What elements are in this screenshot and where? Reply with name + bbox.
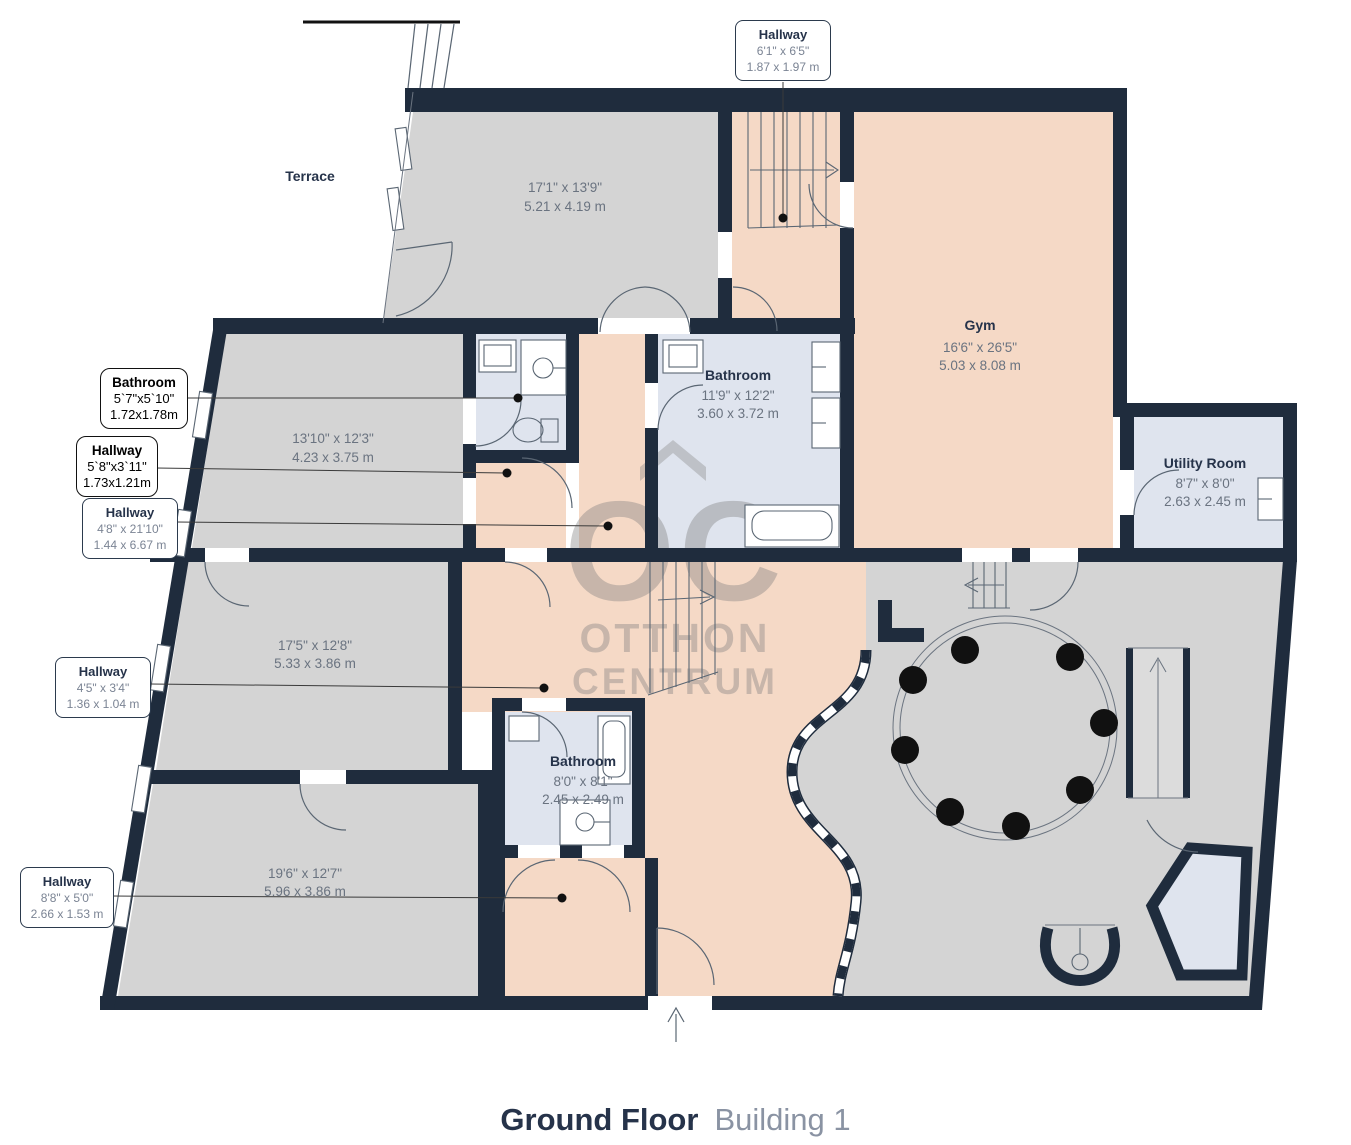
floor-plan-svg: OC OTTHON CENTRUM xyxy=(0,0,1351,1145)
bottom-bathroom-label: Bathroom xyxy=(550,753,616,769)
building-title: Building 1 xyxy=(714,1102,850,1138)
callout-hallway-d: Hallway 8'8" x 5'0" 2.66 x 1.53 m xyxy=(20,867,114,928)
callout-hallway-b: Hallway 4'8" x 21'10" 1.44 x 6.67 m xyxy=(82,498,178,559)
callout-m: 1.72x1.78m xyxy=(107,407,181,423)
gym-ft: 16'6" x 26'5" xyxy=(943,340,1017,355)
utility-label: Utility Room xyxy=(1164,455,1246,471)
callout-ft: 8'8" x 5'0" xyxy=(27,890,107,906)
callout-ft: 5`7"x5`10" xyxy=(107,391,181,407)
mid-bathroom-m: 3.60 x 3.72 m xyxy=(697,406,779,421)
callout-ft: 4'8" x 21'10" xyxy=(89,521,171,537)
callout-title: Hallway xyxy=(27,873,107,890)
room-17-5-m: 5.33 x 3.86 m xyxy=(274,656,356,671)
terrace-floor xyxy=(383,112,718,323)
floor-title: Ground Floor xyxy=(500,1102,698,1138)
room-17-5-ft: 17'5" x 12'8" xyxy=(278,638,352,653)
outdoor-stairs xyxy=(303,22,460,88)
mid-bathroom-label: Bathroom xyxy=(705,367,771,383)
callout-m: 1.73x1.21m xyxy=(83,475,151,491)
room-13-10-ft: 13'10" x 12'3" xyxy=(292,431,374,446)
watermark-logo: OC OTTHON CENTRUM xyxy=(565,440,786,702)
callout-title: Hallway xyxy=(742,26,824,43)
bottom-bathroom-ft: 8'0" x 8'1" xyxy=(553,774,612,789)
room-17-1-ft: 17'1" x 13'9" xyxy=(528,180,602,195)
gym-m: 5.03 x 8.08 m xyxy=(939,358,1021,373)
gym-label: Gym xyxy=(964,317,995,333)
right-staircase xyxy=(1126,648,1190,798)
utility-m: 2.63 x 2.45 m xyxy=(1164,494,1246,509)
callout-ft: 6'1" x 6'5" xyxy=(742,43,824,59)
utility-ft: 8'7" x 8'0" xyxy=(1175,476,1234,491)
callout-bathroom-left: Bathroom 5`7"x5`10" 1.72x1.78m xyxy=(100,368,188,429)
callout-ft: 5`8"x3`11" xyxy=(83,459,151,475)
mini-hall-floor xyxy=(474,463,566,553)
callout-hallway-top: Hallway 6'1" x 6'5" 1.87 x 1.97 m xyxy=(735,20,831,81)
bottom-bathroom-m: 2.45 x 2.49 m xyxy=(542,792,624,807)
callout-hallway-c: Hallway 4'5" x 3'4" 1.36 x 1.04 m xyxy=(55,657,151,718)
room-13-10-m: 4.23 x 3.75 m xyxy=(292,450,374,465)
callout-m: 1.87 x 1.97 m xyxy=(742,59,824,75)
callout-hallway-a: Hallway 5`8"x3`11" 1.73x1.21m xyxy=(76,436,158,497)
room-19-6-ft: 19'6" x 12'7" xyxy=(268,866,342,881)
callout-m: 1.36 x 1.04 m xyxy=(62,696,144,712)
callout-ft: 4'5" x 3'4" xyxy=(62,680,144,696)
callout-title: Hallway xyxy=(83,442,151,459)
callout-m: 1.44 x 6.67 m xyxy=(89,537,171,553)
callout-title: Hallway xyxy=(89,504,171,521)
terrace-label: Terrace xyxy=(285,168,335,184)
room-17-1-m: 5.21 x 4.19 m xyxy=(524,199,606,214)
callout-m: 2.66 x 1.53 m xyxy=(27,906,107,922)
plan-title: Ground Floor Building 1 xyxy=(0,1102,1351,1138)
callout-title: Hallway xyxy=(62,663,144,680)
watermark-otthon: OTTHON xyxy=(579,615,770,661)
watermark-centrum: CENTRUM xyxy=(572,661,778,702)
mid-bathroom-ft: 11'9" x 12'2" xyxy=(701,388,774,403)
room-19-6-m: 5.96 x 3.86 m xyxy=(264,884,346,899)
callout-title: Bathroom xyxy=(107,374,181,391)
